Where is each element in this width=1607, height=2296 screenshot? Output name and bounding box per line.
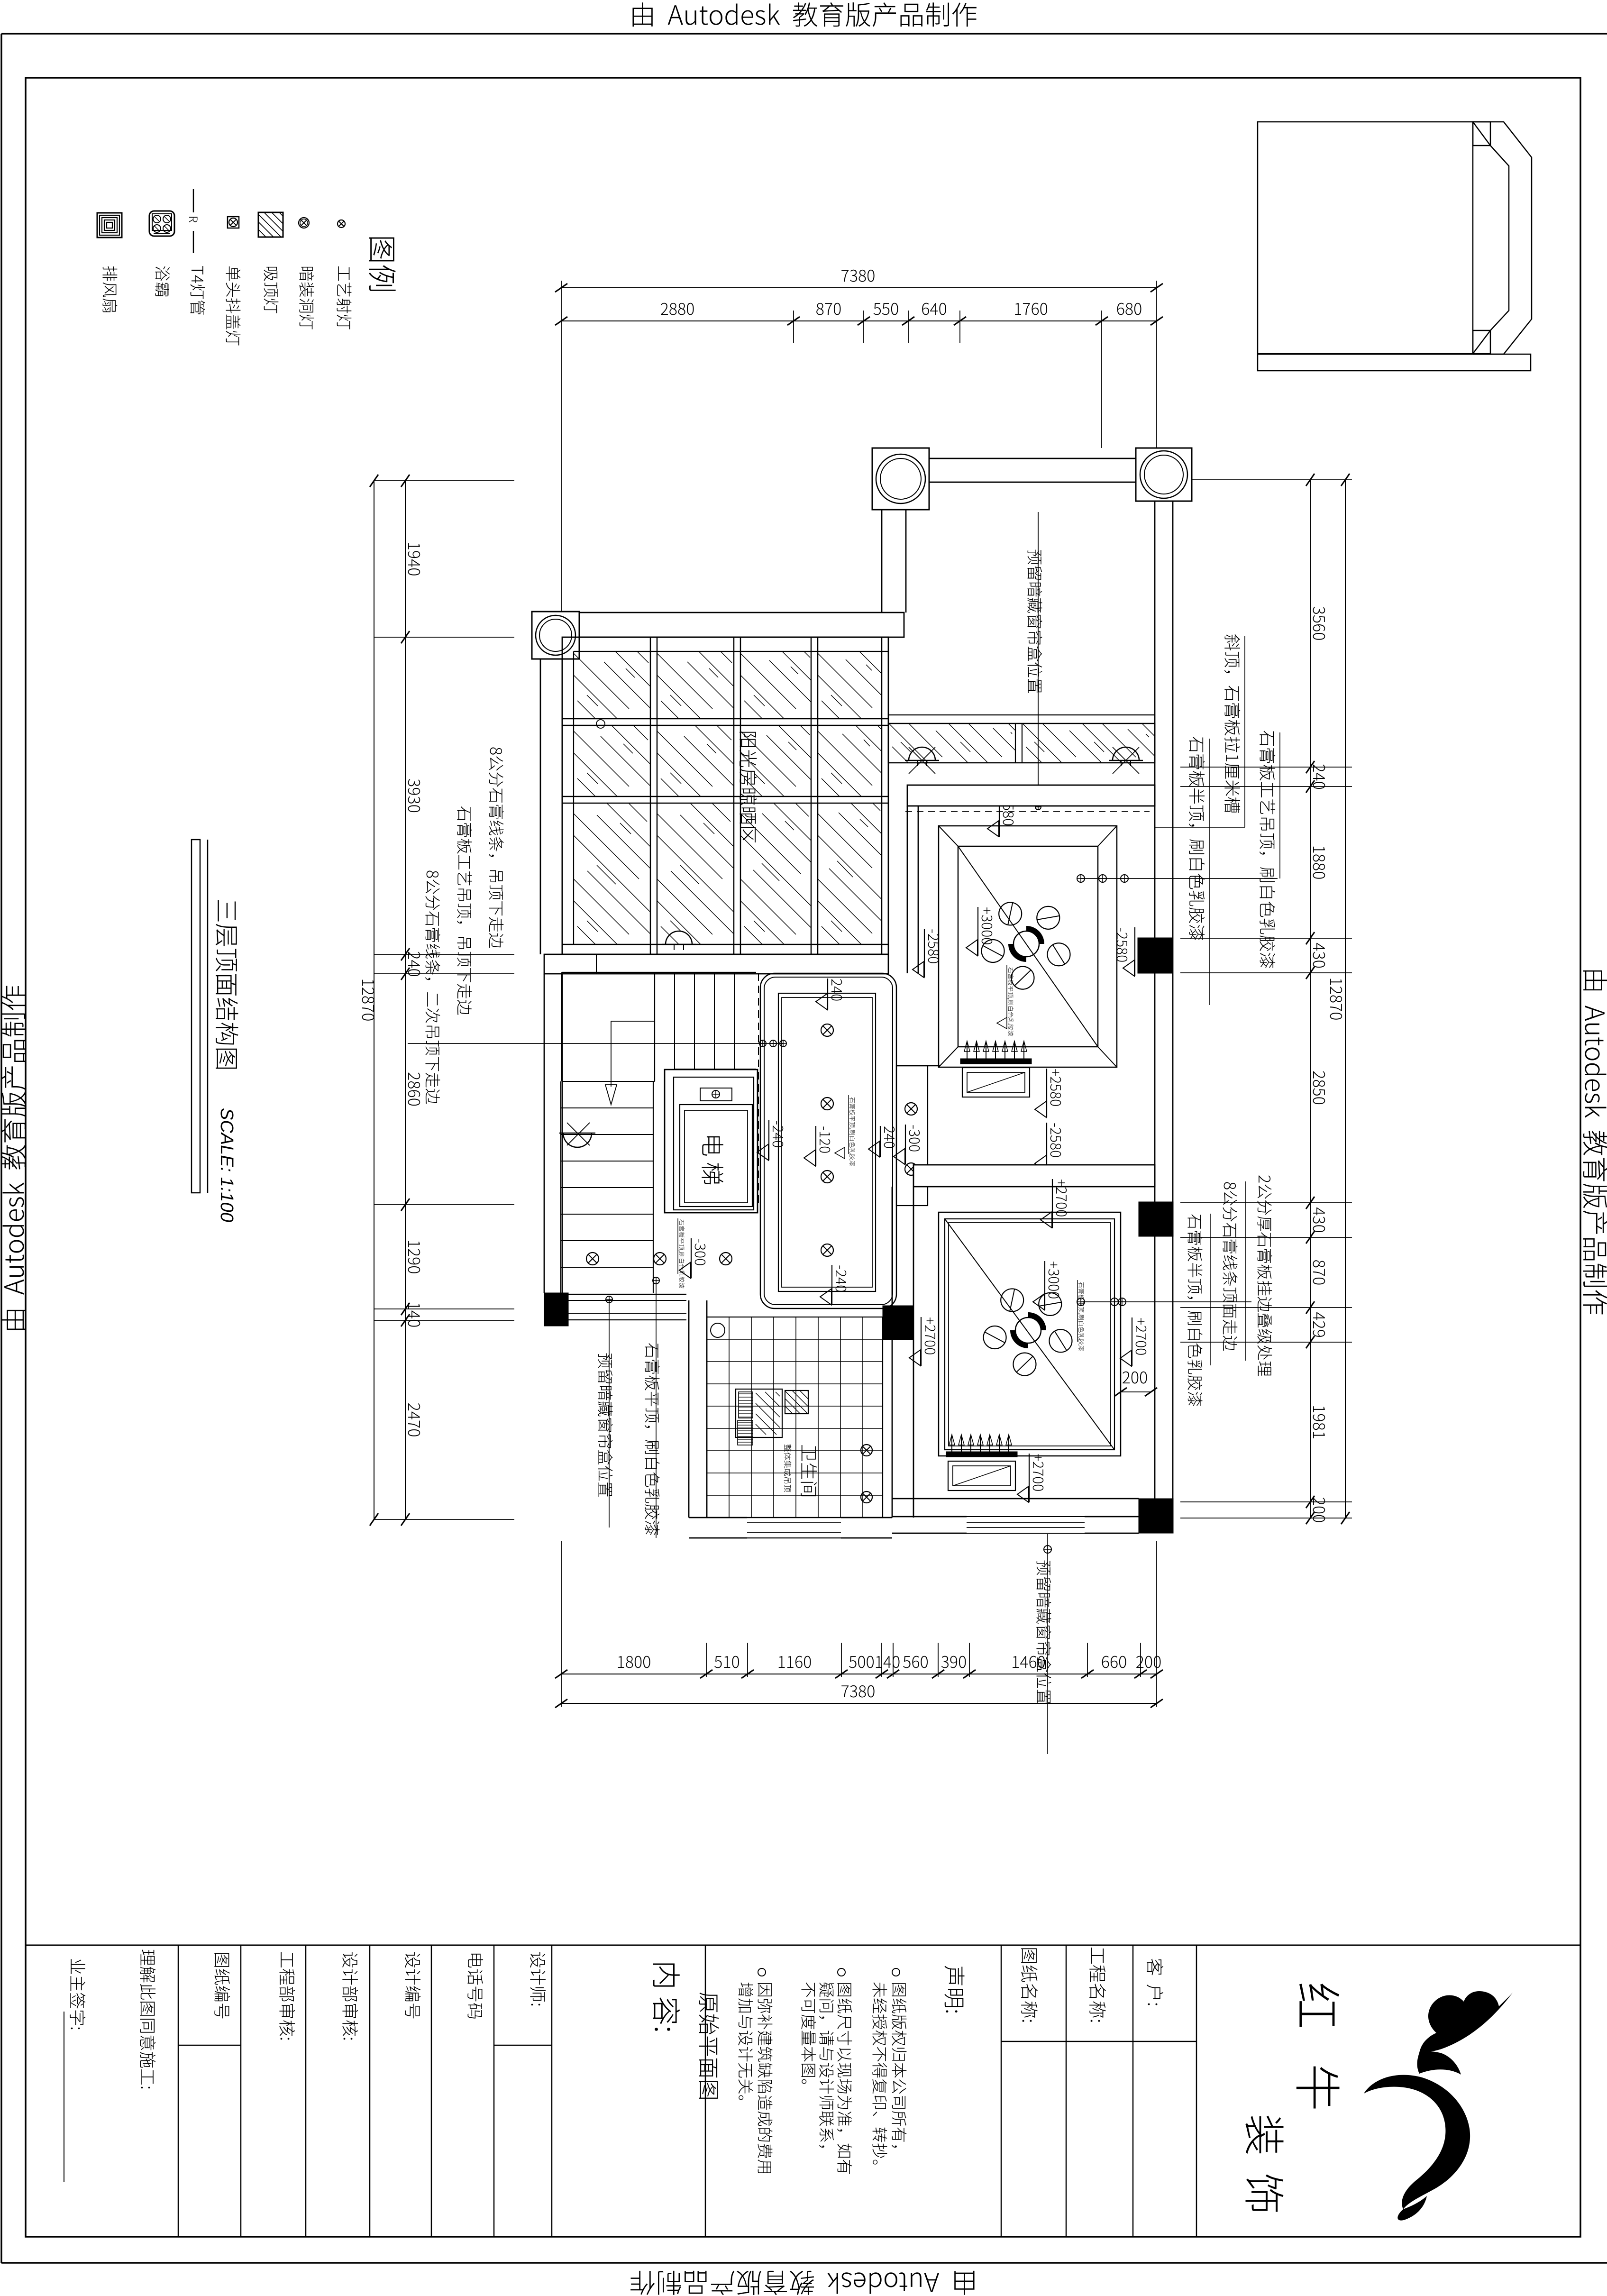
- svg-text:SCALE: 1:100: SCALE: 1:100: [217, 1108, 237, 1222]
